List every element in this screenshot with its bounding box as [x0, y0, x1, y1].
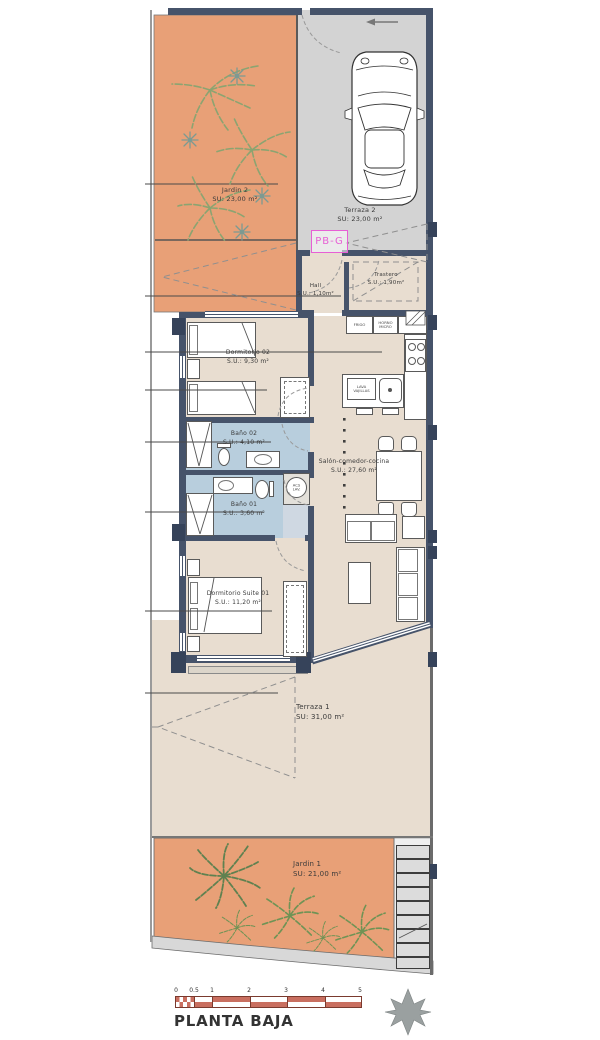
scale-tick: 5 — [358, 987, 362, 994]
wall-segment — [168, 8, 302, 15]
wall-segment — [344, 262, 349, 312]
porch-sill — [188, 666, 308, 674]
burner — [408, 343, 416, 351]
room-label-hall: Hall S.U.: 1,10m² — [288, 283, 343, 299]
window — [179, 356, 186, 378]
window — [197, 655, 290, 663]
sofa-cushion — [371, 521, 395, 541]
garden1-tree — [190, 844, 260, 908]
nightstand — [187, 559, 200, 576]
dishwasher-label: LAVA VAJILLAS — [348, 379, 375, 399]
entry-arrow-icon — [366, 19, 398, 26]
dishwasher: LAVA VAJILLAS — [347, 378, 376, 400]
site-path — [152, 936, 433, 974]
stair-tread — [396, 859, 430, 873]
wall-segment — [186, 312, 205, 318]
burner — [408, 357, 416, 365]
jardin1-floor — [154, 838, 394, 964]
window — [179, 556, 186, 576]
scale-bar-row — [175, 1002, 362, 1008]
stair-tread — [396, 915, 430, 929]
water-heater-label: ACS LAV. — [287, 478, 306, 497]
plan-linework — [0, 0, 600, 1040]
stair-tread — [396, 901, 430, 915]
burner — [417, 343, 425, 351]
sofa-cushion — [398, 573, 418, 596]
room-label-terraza1: Terraza 1 SU: 31,00 m² — [296, 702, 381, 722]
column-marker — [428, 546, 437, 559]
scale-tick: 1 — [210, 987, 214, 994]
room-label-jardin1: Jardin 1 SU: 21,00 m² — [293, 859, 378, 879]
sofa-cushion — [398, 597, 418, 620]
room-label-salon: Salón-comedor-cocina S.U.: 27,60 m² — [308, 458, 400, 475]
garden-terrace-divider — [296, 15, 298, 253]
stair-tread — [396, 957, 430, 969]
basin — [218, 480, 234, 491]
chair — [401, 502, 417, 517]
sink-drain — [388, 388, 392, 392]
column-marker — [428, 530, 437, 543]
site-plan-base — [0, 0, 600, 1040]
room-label-dormitorio02: Dormitorio 02 S.U.: 9,30 m² — [212, 349, 284, 366]
nightstand — [187, 636, 200, 652]
column-marker — [172, 524, 185, 541]
wall-segment — [308, 541, 314, 660]
window — [179, 633, 186, 651]
compass-rose-icon — [385, 989, 431, 1035]
room-label-jardin2: Jardin 2 SU: 23,00 m² — [190, 186, 280, 205]
wardrobe-interior — [284, 381, 306, 414]
oven-label: HORNO MICRO — [374, 317, 397, 333]
garden2-fronds — [172, 66, 290, 242]
column-marker — [428, 315, 437, 330]
room-label-bano02: Baño 02 S.U.: 4,10 m² — [208, 430, 280, 447]
basin — [254, 454, 272, 465]
salon-window-wall — [312, 624, 431, 661]
burner — [417, 357, 425, 365]
unit-code-badge: PB-G — [311, 230, 348, 253]
terraza1-jardin1-border — [152, 836, 433, 838]
scale-tick: 0 — [174, 987, 178, 994]
toilet-tank — [269, 481, 274, 497]
fridge: FRIGO — [346, 316, 373, 334]
chair — [378, 436, 394, 451]
water-heater: ACS LAV. — [286, 477, 307, 498]
coffee-table — [348, 562, 371, 604]
stool — [382, 408, 399, 415]
wall-segment — [308, 316, 314, 386]
site-boundary-right — [430, 626, 433, 975]
car-illustration — [345, 52, 424, 205]
scale-tick: 2 — [247, 987, 251, 994]
wall-segment — [179, 576, 186, 633]
nightstand — [187, 359, 200, 379]
sofa-cushion — [347, 521, 371, 541]
room-label-trastero: Trastero S.U.: 1,90m² — [355, 272, 417, 288]
fridge-label: FRIGO — [347, 317, 372, 333]
jardin2-floor — [154, 15, 297, 312]
site-boundary-left — [150, 10, 152, 942]
column-post — [171, 652, 186, 673]
room-label-bano01: Baño 01 S.U.: 3,60 m² — [208, 501, 280, 518]
wardrobe-interior — [286, 585, 304, 653]
stool — [356, 408, 373, 415]
bed-pillow — [189, 325, 198, 355]
chair — [401, 436, 417, 451]
scale-tick: 0.5 — [189, 987, 199, 994]
stair-tread — [396, 943, 430, 957]
wall-segment — [426, 316, 433, 628]
stair-tread — [396, 887, 430, 901]
wall-segment — [426, 8, 433, 316]
stair-tread — [396, 929, 430, 943]
wall-segment — [308, 506, 314, 535]
room-label-suite01: Dormitorio Suite 01 S.U.: 11,20 m² — [194, 590, 282, 607]
scale-tick: 4 — [321, 987, 325, 994]
room-label-terraza2: Terraza 2 SU: 23,00 m² — [315, 206, 405, 225]
kitchen-counter — [398, 316, 427, 334]
stair-tread — [396, 873, 430, 887]
column-marker — [428, 652, 437, 667]
sofa-cushion — [398, 549, 418, 572]
wall-segment — [310, 8, 433, 15]
toilet — [255, 480, 269, 499]
wall-segment — [342, 250, 433, 256]
stair-tread — [396, 845, 430, 859]
bed-pillow — [189, 384, 198, 412]
column-marker — [428, 222, 437, 237]
page-title: PLANTA BAJA — [174, 1012, 294, 1030]
scale-tick: 3 — [284, 987, 288, 994]
bed-pillow — [190, 608, 198, 630]
side-table — [402, 516, 425, 539]
column-marker — [428, 425, 437, 440]
toilet — [218, 448, 230, 466]
oven-microwave: HORNO MICRO — [373, 316, 398, 334]
window — [205, 311, 298, 318]
floor-plan: ACS LAV. FRIGO HORNO MICRO LAVA VAJILLAS — [0, 0, 600, 1040]
column-marker — [172, 318, 185, 335]
